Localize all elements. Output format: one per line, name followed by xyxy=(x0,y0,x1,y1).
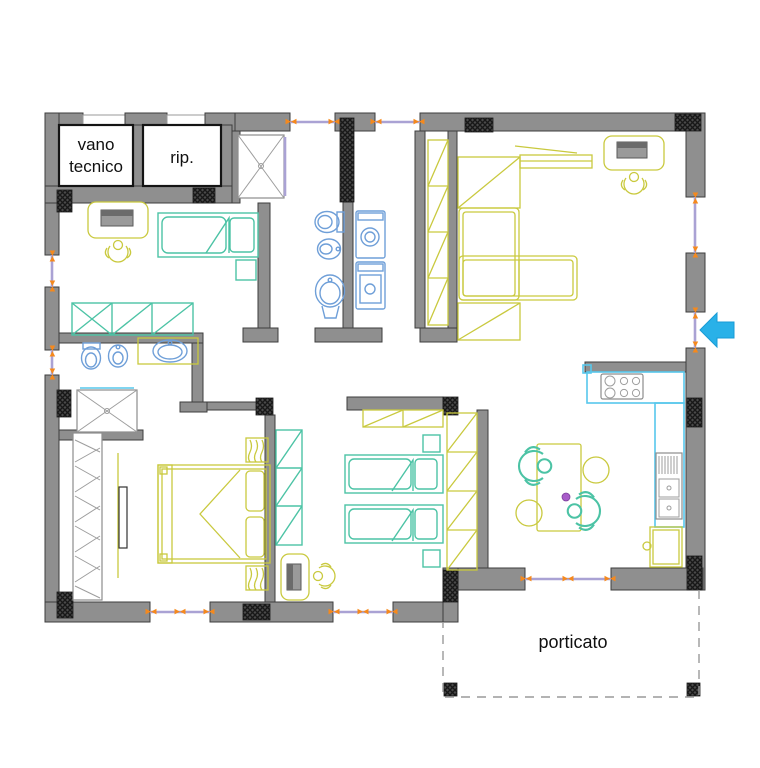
living-room xyxy=(458,136,664,340)
dining-chair-icon xyxy=(516,500,542,526)
room-rip: rip. xyxy=(143,125,221,186)
porticato: porticato xyxy=(443,590,699,697)
wardrobe-icon xyxy=(363,410,443,427)
room-label-vano-tecnico-2: tecnico xyxy=(69,157,123,176)
window-icon xyxy=(693,193,699,258)
room-label-porticato: porticato xyxy=(538,632,607,652)
window-icon xyxy=(286,119,340,125)
twin-bed-icon xyxy=(345,455,443,493)
kitchen xyxy=(583,365,684,567)
wardrobe-icon xyxy=(72,303,193,335)
window-icon xyxy=(50,251,56,292)
desk-icon xyxy=(604,136,664,170)
single-bed-icon xyxy=(158,213,258,257)
column-icon xyxy=(443,570,458,602)
column-icon xyxy=(57,390,71,417)
column-icon xyxy=(193,188,215,203)
twin-bed-icon xyxy=(345,505,443,543)
toilet-icon xyxy=(82,343,101,369)
floor-plan-page: vano tecnico rip. xyxy=(0,0,760,768)
dining-area xyxy=(516,444,609,531)
column-icon xyxy=(687,683,700,696)
window-icon xyxy=(371,119,425,125)
wardrobe-icon xyxy=(276,430,302,545)
room-label-vano-tecnico-1: vano xyxy=(78,135,115,154)
sofa-icon xyxy=(459,208,577,300)
bedroom2 xyxy=(73,433,270,600)
tv-icon xyxy=(515,146,577,153)
desk-icon xyxy=(281,554,309,600)
washer-dryer-icon xyxy=(356,211,385,309)
window-icon xyxy=(146,609,215,615)
column-icon xyxy=(340,118,354,202)
dining-chair-person-icon xyxy=(568,492,600,530)
window-icon xyxy=(329,609,398,615)
table-centerpiece-icon xyxy=(562,493,570,501)
room-vano-tecnico: vano tecnico xyxy=(59,125,133,186)
double-bed-icon xyxy=(158,465,270,563)
dining-chair-icon xyxy=(583,457,609,483)
column-icon xyxy=(243,604,270,620)
bedroom1 xyxy=(72,202,258,335)
cabinet-icon xyxy=(458,303,520,340)
desk-chair-person-icon xyxy=(105,241,130,263)
washbasin-icon xyxy=(316,275,345,318)
desk-chair-person-icon xyxy=(621,173,646,195)
shower-icon xyxy=(238,135,285,198)
column-icon xyxy=(256,398,273,415)
floor-plan-drawing: vano tecnico rip. xyxy=(0,0,760,768)
tv-icon xyxy=(119,487,127,548)
shelf-icon xyxy=(458,155,592,208)
wardrobe-icon xyxy=(447,413,477,570)
column-icon xyxy=(675,114,701,131)
porch-door-icon xyxy=(521,576,616,582)
bidet-icon xyxy=(318,239,341,259)
column-icon xyxy=(57,190,72,212)
hanger-wardrobe-icon xyxy=(73,433,102,600)
kitchen-sink-icon xyxy=(656,453,682,519)
nightstand-icon xyxy=(423,550,440,567)
entrance-arrow-icon xyxy=(700,313,734,347)
column-icon xyxy=(465,118,493,132)
column-icon xyxy=(444,683,457,696)
room-label-rip: rip. xyxy=(170,148,194,167)
column-icon xyxy=(443,397,458,415)
column-icon xyxy=(687,398,702,427)
entrance-door-icon xyxy=(693,308,699,353)
shower-icon xyxy=(77,388,137,432)
fridge-icon xyxy=(643,527,682,567)
hob-icon xyxy=(601,374,643,399)
bathroom-left xyxy=(77,338,198,432)
column-icon xyxy=(687,556,702,590)
window-icon xyxy=(50,346,56,380)
nightstand-icon xyxy=(423,435,440,452)
bidet-icon xyxy=(109,345,128,367)
toilet-icon xyxy=(315,212,344,233)
dining-chair-person-icon xyxy=(519,447,551,485)
desk-icon xyxy=(88,202,148,238)
column-icon xyxy=(57,592,73,618)
wardrobe-icon xyxy=(428,140,448,325)
nightstand-icon xyxy=(236,260,256,280)
desk-chair-person-icon xyxy=(314,563,336,588)
